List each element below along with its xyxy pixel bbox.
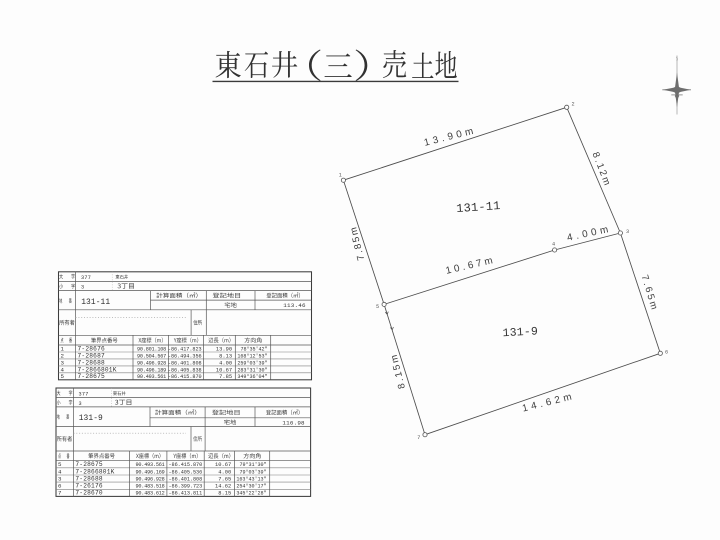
svg-text:283°31'30": 283°31'30"	[237, 367, 267, 373]
svg-text:7.65: 7.65	[218, 476, 231, 482]
svg-text:7-28687: 7-28687	[78, 352, 105, 359]
svg-text:4: 4	[552, 242, 555, 248]
svg-text:90.493.561: 90.493.561	[137, 374, 166, 380]
svg-text:7-28675: 7-28675	[78, 373, 105, 380]
svg-text:90.496.928: 90.496.928	[137, 360, 166, 366]
svg-text:3: 3	[81, 285, 84, 291]
svg-text:259°03'39": 259°03'39"	[237, 360, 267, 366]
svg-text:254°30'17": 254°30'17"	[236, 484, 266, 490]
svg-text:13.90: 13.90	[216, 346, 232, 352]
svg-text:-86.401.808: -86.401.808	[168, 360, 202, 366]
svg-text:-86.415.870: -86.415.870	[168, 462, 202, 468]
svg-text:4.00: 4.00	[218, 469, 231, 475]
svg-text:349°36'04": 349°36'04"	[237, 374, 267, 380]
svg-text:90.493.561: 90.493.561	[135, 462, 164, 468]
svg-text:8.15: 8.15	[218, 491, 231, 497]
svg-text:10.67: 10.67	[216, 367, 232, 373]
svg-text:90.483.518: 90.483.518	[135, 484, 164, 490]
svg-text:78°35'42": 78°35'42"	[240, 346, 267, 352]
svg-text:90.483.612: 90.483.612	[135, 491, 164, 497]
svg-text:6: 6	[665, 350, 668, 356]
svg-text:345°22'28": 345°22'28"	[236, 491, 266, 497]
svg-text:5: 5	[58, 461, 62, 468]
svg-text:90.801.108: 90.801.108	[137, 346, 166, 352]
svg-text:10.67: 10.67	[215, 462, 231, 468]
svg-text:4.00: 4.00	[219, 360, 232, 366]
svg-text:-86.494.356: -86.494.356	[168, 353, 202, 359]
svg-text:7: 7	[417, 435, 420, 441]
svg-text:7-28688: 7-28688	[75, 475, 102, 482]
svg-text:2: 2	[571, 102, 574, 108]
svg-text:90.496.169: 90.496.169	[135, 469, 164, 475]
svg-text:5: 5	[376, 304, 379, 310]
svg-text:79°03'39": 79°03'39"	[239, 469, 266, 475]
svg-text:7-28675: 7-28675	[75, 461, 102, 468]
svg-text:2: 2	[61, 352, 65, 359]
svg-text:-86.415.870: -86.415.870	[168, 374, 202, 380]
svg-text:14.62: 14.62	[215, 484, 231, 490]
svg-text:-86.405.536: -86.405.536	[168, 469, 202, 475]
svg-text:90.496.928: 90.496.928	[135, 476, 164, 482]
svg-text:-86.401.808: -86.401.808	[168, 476, 202, 482]
svg-text:113.46: 113.46	[283, 302, 306, 309]
svg-text:163°43'13": 163°43'13"	[236, 476, 266, 482]
svg-text:3: 3	[58, 475, 62, 482]
svg-text:-86.405.838: -86.405.838	[168, 367, 202, 373]
svg-text:116.98: 116.98	[282, 419, 305, 426]
svg-text:3: 3	[626, 229, 629, 235]
svg-text:3: 3	[61, 359, 65, 366]
svg-text:-86.413.811: -86.413.811	[168, 491, 202, 497]
svg-text:7-28670: 7-28670	[75, 490, 102, 497]
svg-text:377: 377	[81, 275, 91, 281]
svg-text:8.13: 8.13	[219, 353, 232, 359]
svg-text:377: 377	[79, 392, 89, 398]
svg-text:7-28688: 7-28688	[78, 359, 105, 366]
svg-text:3: 3	[79, 401, 82, 407]
svg-text:-86.399.723: -86.399.723	[168, 484, 202, 490]
svg-text:-86.417.823: -86.417.823	[168, 346, 202, 352]
svg-text:4: 4	[58, 468, 62, 475]
svg-text:90.504.567: 90.504.567	[137, 353, 166, 359]
svg-text:131-9: 131-9	[502, 325, 538, 340]
svg-text:131-11: 131-11	[81, 298, 110, 307]
svg-text:90.496.189: 90.496.189	[137, 367, 166, 373]
svg-text:7-2866801K: 7-2866801K	[75, 468, 114, 475]
svg-text:6: 6	[58, 483, 62, 490]
svg-text:131-9: 131-9	[79, 414, 103, 423]
svg-text:7-26176: 7-26176	[75, 483, 102, 490]
svg-text:168°12'53": 168°12'53"	[237, 353, 267, 359]
svg-text:5: 5	[61, 373, 65, 380]
svg-text:1: 1	[339, 173, 342, 179]
svg-text:7.85: 7.85	[219, 374, 232, 380]
svg-text:79°31'30": 79°31'30"	[239, 462, 266, 468]
svg-text:7: 7	[58, 490, 62, 497]
